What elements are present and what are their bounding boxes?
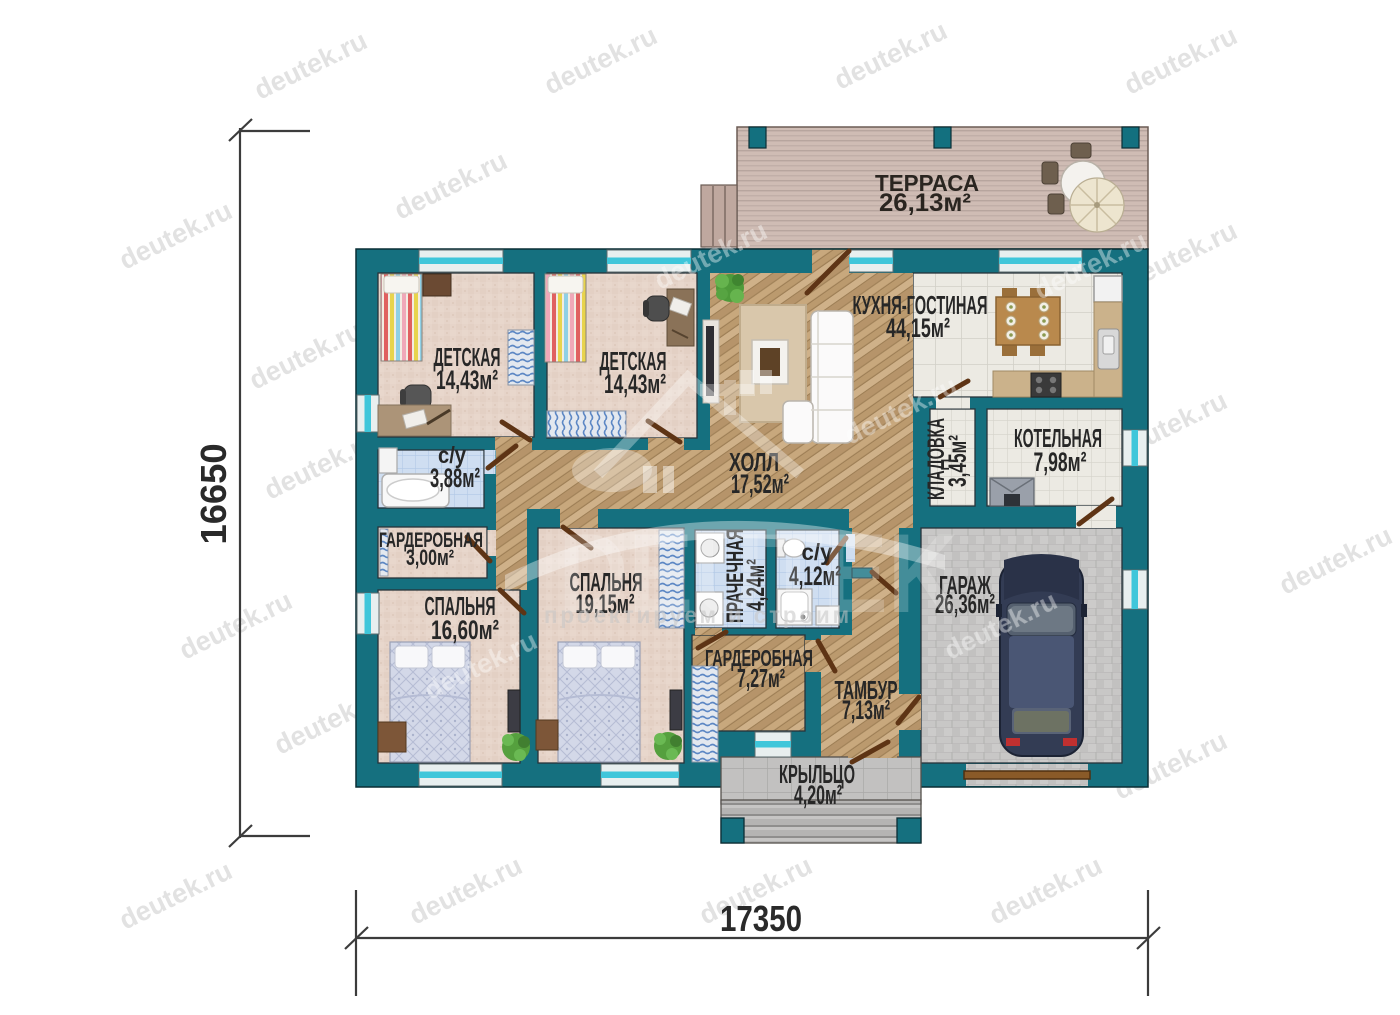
svg-text:7,27м²: 7,27м² [737, 663, 785, 693]
svg-text:17350: 17350 [720, 898, 802, 939]
svg-text:14,43м²: 14,43м² [604, 369, 666, 399]
svg-text:4,20м²: 4,20м² [794, 780, 842, 810]
svg-text:14,43м²: 14,43м² [436, 365, 498, 395]
svg-text:16,60м²: 16,60м² [431, 615, 499, 645]
svg-text:3,00м²: 3,00м² [406, 545, 454, 570]
svg-text:проектируем и строим: проектируем и строим [544, 602, 852, 628]
svg-text:7,13м²: 7,13м² [842, 695, 890, 725]
svg-text:7,98м²: 7,98м² [1034, 447, 1087, 477]
svg-text:44,15м²: 44,15м² [886, 313, 950, 343]
svg-text:3,45м²: 3,45м² [944, 435, 972, 487]
svg-text:16650: 16650 [193, 444, 234, 545]
svg-text:26,13м²: 26,13м² [879, 189, 971, 217]
svg-text:3,88м²: 3,88м² [430, 463, 480, 493]
svg-text:17,52м²: 17,52м² [731, 469, 789, 499]
